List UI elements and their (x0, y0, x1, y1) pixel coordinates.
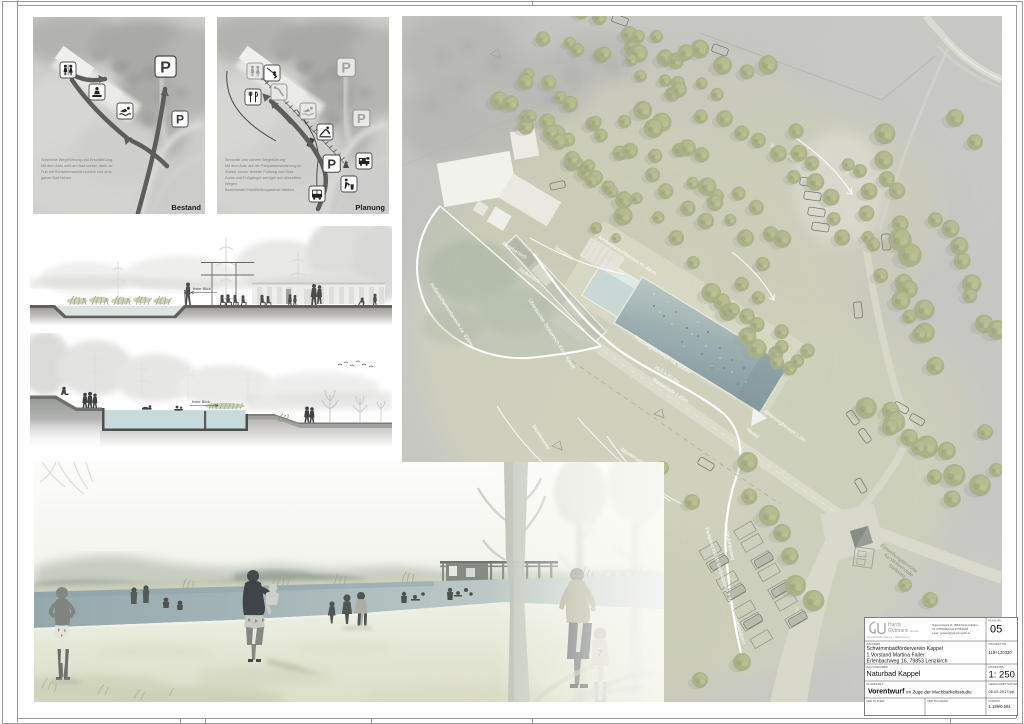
svg-text:1.189/0.594: 1.189/0.594 (989, 704, 1012, 709)
svg-text:Bestand: Bestand (171, 203, 201, 212)
svg-text:Fuß mit Schwimmsachen zurück u: Fuß mit Schwimmsachen zurück und ums (41, 170, 112, 174)
svg-text:Süden, kurzer direkter Fußweg: Süden, kurzer direkter Fußweg zum Bad. (225, 170, 294, 174)
svg-text:05: 05 (990, 624, 1002, 636)
svg-text:DER PLANER: DER PLANER (867, 699, 885, 703)
svg-text:GEZEICHNET DATUM: GEZEICHNET DATUM (989, 682, 1018, 686)
svg-text:Schwimmbadförderverein Kappel: Schwimmbadförderverein Kappel (867, 646, 943, 652)
svg-text:Mit dem Auto wird am Bad vorbe: Mit dem Auto wird am Bad vorbei, dann zu (41, 164, 112, 168)
svg-text:Tel. 07755/91091 Fax 07755/: Tel. 07755/91091 Fax 07755/91093 (932, 629, 969, 631)
svg-text:119+120330: 119+120330 (989, 650, 1013, 655)
svg-text:Autos und Fußgänger weniger au: Autos und Fußgänger weniger auf denselbe… (225, 176, 301, 180)
svg-text:Mit dem Auto auf die Parkplatz: Mit dem Auto auf die Parkplatzerweiterun… (225, 164, 301, 168)
svg-text:Planung: Planung (355, 203, 385, 212)
svg-text:Gesellschaft für Planung u. Ba: Gesellschaft für Planung u. Baubetreuung (867, 636, 910, 639)
svg-text:FORMAT: FORMAT (989, 699, 1001, 703)
svg-text:Vorentwurf im Zuge der Machbar: Vorentwurf im Zuge der Machbarkeitsstudi… (868, 689, 972, 696)
svg-text:freier Blick: freier Blick (193, 287, 211, 291)
svg-text:Schlechte Wegeführung und Ersc: Schlechte Wegeführung und Erschließung: (41, 158, 113, 162)
svg-text:ganze Bad herum.: ganze Bad herum. (41, 176, 72, 180)
svg-text:Bestehende Erschließungsachse: Bestehende Erschließungsachse stärken. (225, 188, 295, 192)
svg-text:Erlenbachweg 16, 79853 Lenzkir: Erlenbachweg 16, 79853 Lenzkirch (867, 659, 948, 665)
svg-text:Sinnvolle und sichere Wegeführ: Sinnvolle und sichere Wegeführung: (225, 158, 286, 162)
svg-text:freier Blick: freier Blick (192, 400, 210, 404)
svg-text:PLAN NR: PLAN NR (989, 619, 1001, 623)
svg-text:PLANINHALT: PLANINHALT (867, 682, 884, 686)
svg-text:Heppenschwand 16, 79862 Höchen: Heppenschwand 16, 79862 Höchenschwand (932, 625, 978, 627)
svg-text:06.03.2017/pp: 06.03.2017/pp (989, 689, 1015, 694)
svg-text:1: 250: 1: 250 (989, 670, 1015, 681)
svg-text:Naturbad Kappel: Naturbad Kappel (867, 669, 921, 678)
svg-text:Wegen.: Wegen. (225, 182, 238, 186)
svg-text:e-mail : gutmann@gutmann-gmbh.: e-mail : gutmann@gutmann-gmbh.de (932, 632, 971, 635)
svg-text:MASSSTAB: MASSSTAB (989, 665, 1004, 669)
svg-text:PROJEKT NR: PROJEKT NR (989, 642, 1007, 646)
svg-text:DER BAUHERR: DER BAUHERR (928, 699, 948, 703)
